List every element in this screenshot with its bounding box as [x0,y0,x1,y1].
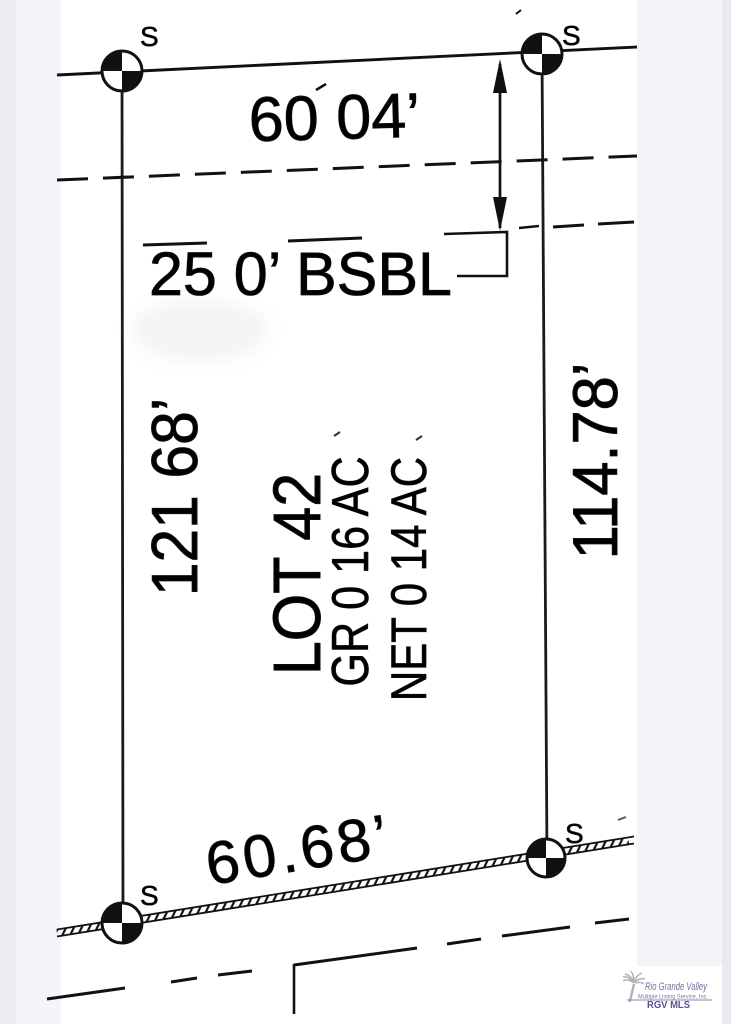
svg-text:121 68’: 121 68’ [139,398,211,596]
svg-text:S: S [140,21,159,52]
svg-text:S: S [565,818,584,849]
svg-text:RGV MLS: RGV MLS [647,1000,690,1011]
svg-text:S: S [562,20,581,51]
svg-text:GR 0 16 AC: GR 0 16 AC [322,456,380,686]
svg-text:NET 0 14 AC: NET 0 14 AC [381,457,437,701]
svg-text:60 04’: 60 04’ [248,81,421,155]
svg-text:Rio Grande Valley: Rio Grande Valley [645,981,708,993]
svg-text:S: S [140,880,159,911]
svg-text:25 0’ BSBL: 25 0’ BSBL [149,240,452,308]
svg-text:114.78’: 114.78’ [561,363,631,560]
